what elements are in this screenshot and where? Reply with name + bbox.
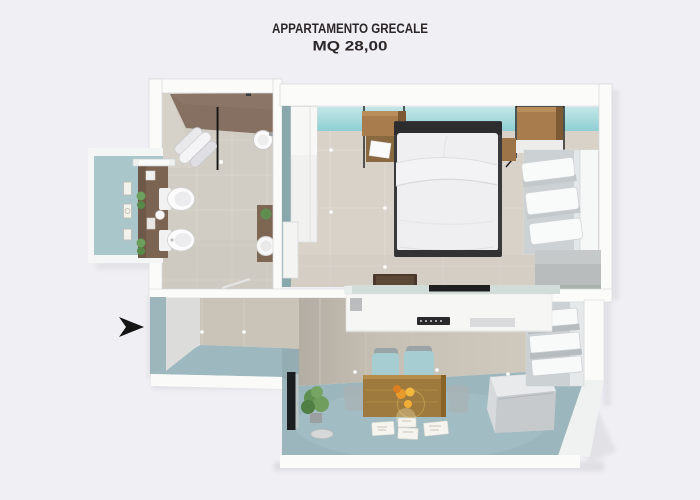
svg-text:APPARTAMENTO GRECALE: APPARTAMENTO GRECALE [272, 21, 428, 36]
svg-text:MQ 28,00: MQ 28,00 [313, 39, 388, 54]
